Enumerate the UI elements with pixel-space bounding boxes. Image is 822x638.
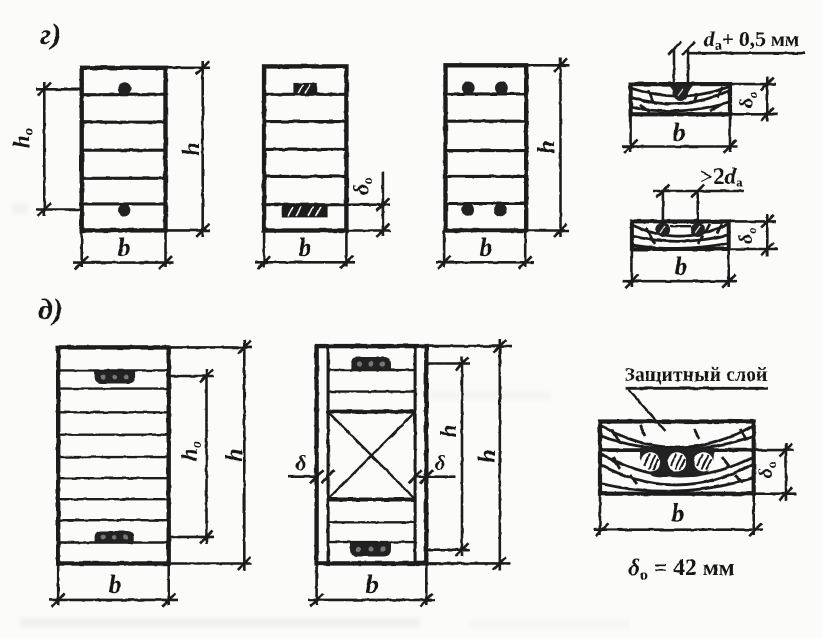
svg-text:δ: δ	[296, 451, 307, 475]
svg-text:hо: hо	[177, 441, 205, 461]
svg-text:b: b	[299, 233, 312, 262]
svg-text:δ: δ	[435, 451, 446, 475]
svg-text:h: h	[534, 140, 560, 153]
svg-text:г): г)	[40, 18, 61, 51]
svg-text:b: b	[672, 499, 685, 528]
svg-text:>2dа: >2dа	[700, 164, 743, 191]
svg-text:b: b	[673, 118, 686, 147]
svg-text:δо: δо	[736, 91, 760, 108]
svg-text:Защитный слой: Защитный слой	[624, 365, 767, 386]
svg-text:δо = 42 мм: δо = 42 мм	[628, 555, 735, 584]
svg-text:b: b	[118, 233, 131, 262]
svg-text:b: b	[480, 233, 493, 262]
svg-text:b: b	[675, 252, 688, 281]
svg-text:hо: hо	[9, 128, 37, 148]
svg-text:h: h	[222, 448, 248, 461]
svg-text:dа+ 0,5 мм: dа+ 0,5 мм	[704, 27, 799, 54]
svg-text:δо: δо	[755, 461, 779, 478]
svg-text:δо: δо	[349, 177, 376, 195]
svg-text:b: b	[109, 570, 122, 599]
svg-text:h: h	[179, 142, 205, 155]
svg-text:δо: δо	[735, 227, 759, 244]
svg-text:h: h	[436, 425, 461, 438]
svg-text:д): д)	[38, 293, 63, 326]
svg-text:h: h	[475, 449, 501, 462]
svg-text:b: b	[366, 570, 379, 599]
